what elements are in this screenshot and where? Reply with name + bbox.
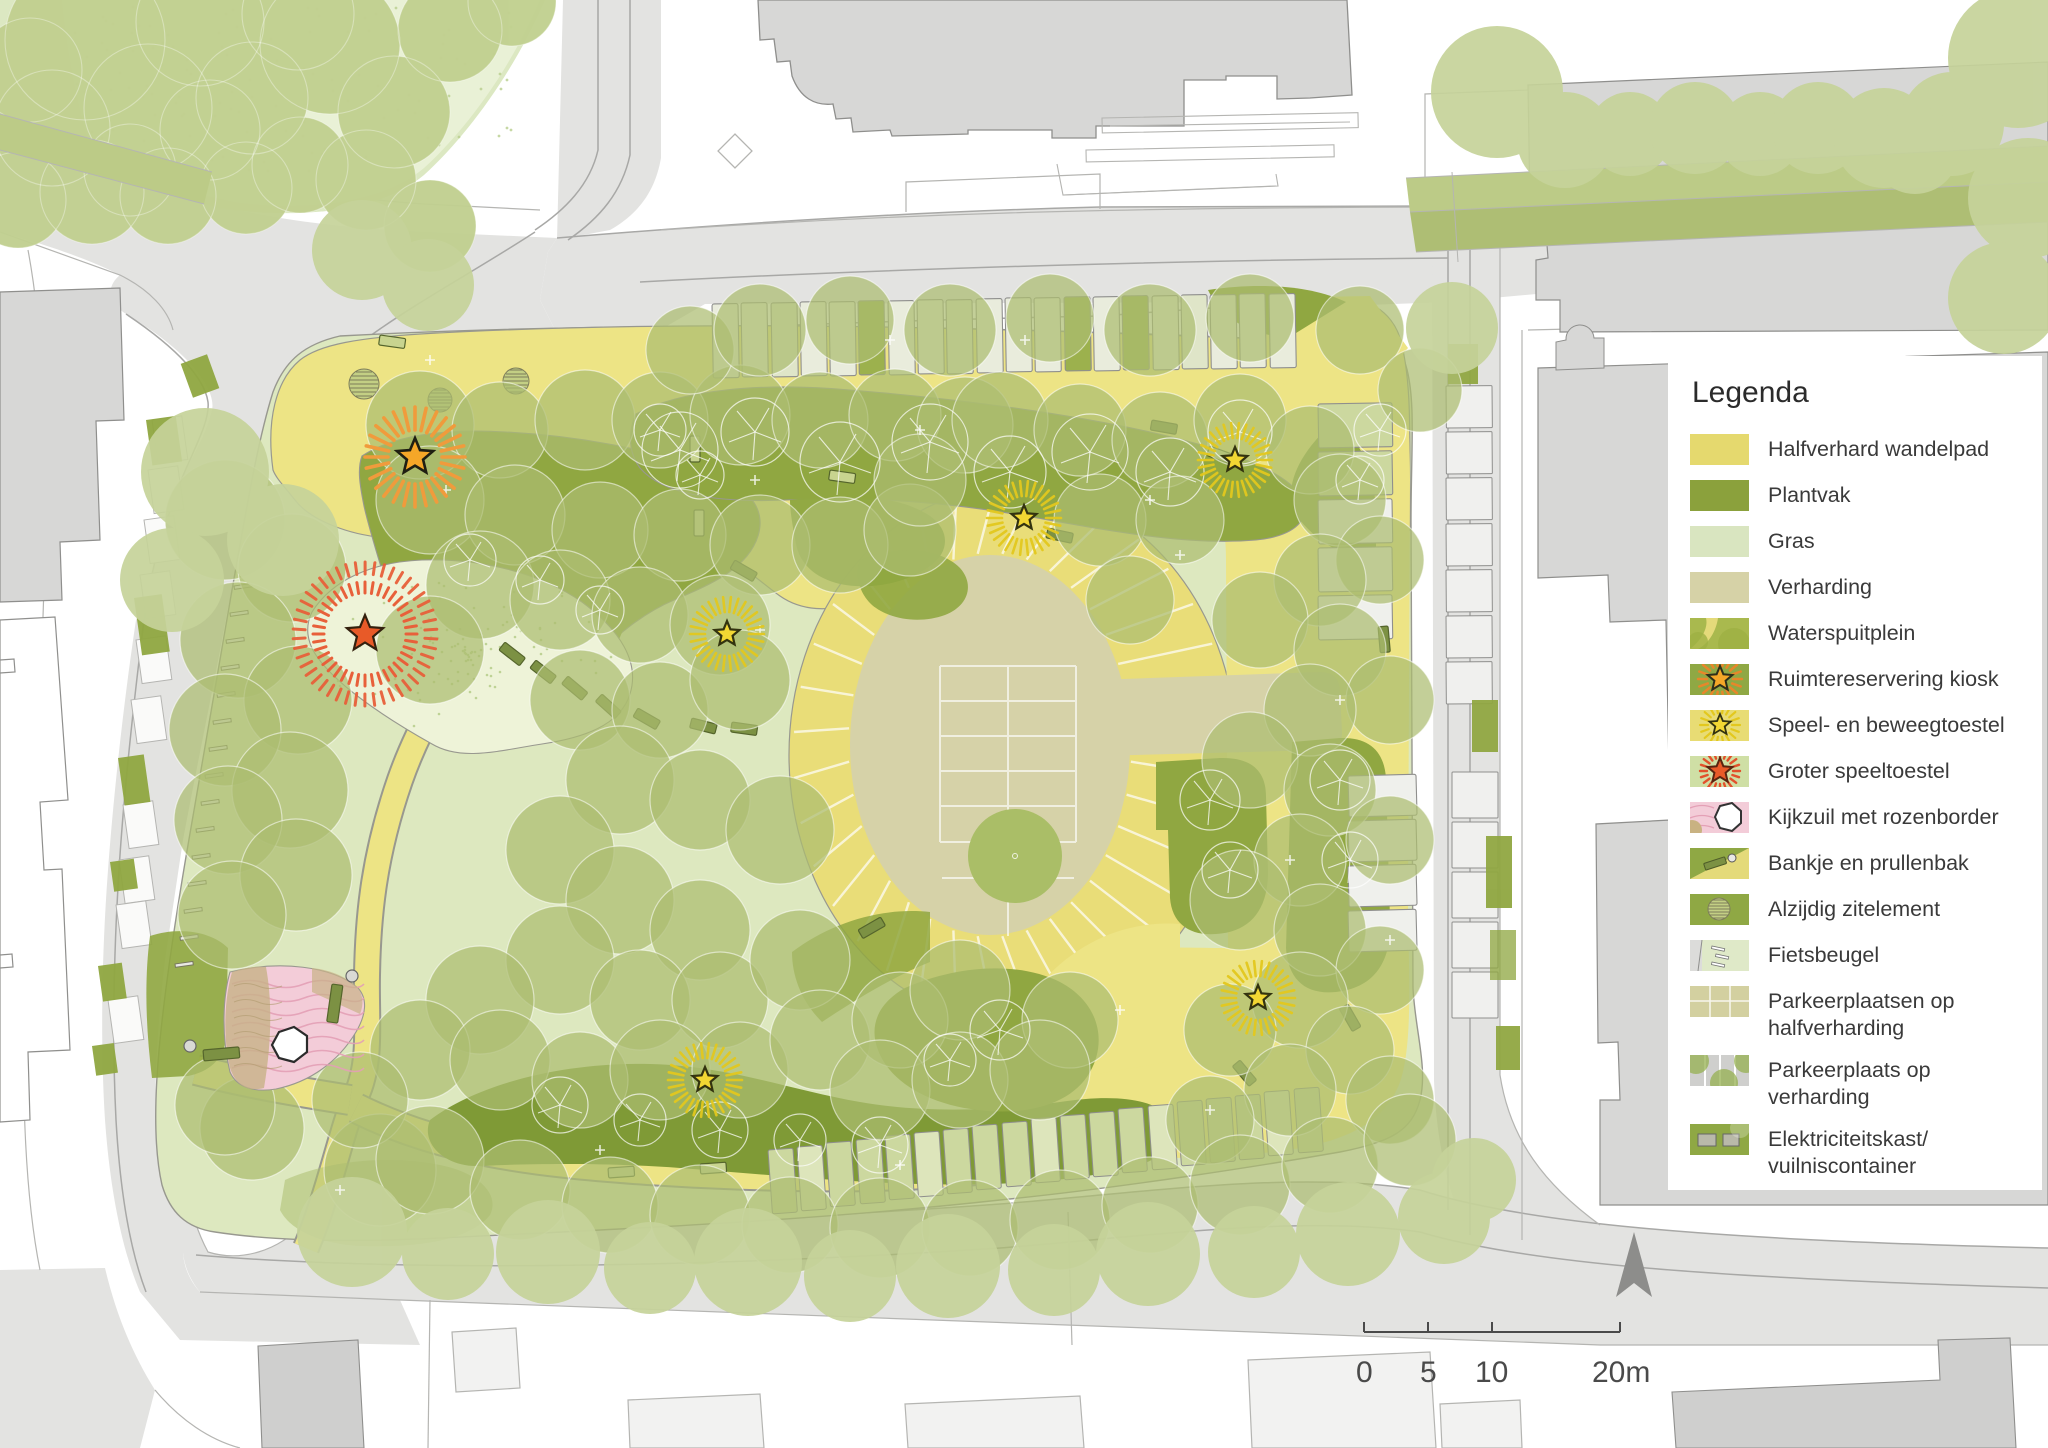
svg-text:Verharding: Verharding [1768, 575, 1872, 599]
svg-text:Waterspuitplein: Waterspuitplein [1768, 621, 1915, 645]
svg-text:Elektriciteitskast/: Elektriciteitskast/ [1768, 1127, 1928, 1151]
svg-text:Alzijdig zitelement: Alzijdig zitelement [1768, 897, 1940, 921]
svg-text:Halfverhard wandelpad: Halfverhard wandelpad [1768, 437, 1989, 461]
svg-text:Bankje en prullenbak: Bankje en prullenbak [1768, 851, 1969, 875]
svg-text:Kijkzuil met rozenborder: Kijkzuil met rozenborder [1768, 805, 1999, 829]
svg-text:0: 0 [1356, 1356, 1373, 1389]
svg-text:Legenda: Legenda [1692, 376, 1809, 409]
svg-text:halfverharding: halfverharding [1768, 1016, 1904, 1040]
svg-text:10: 10 [1475, 1356, 1508, 1389]
svg-text:Parkeerplaatsen op: Parkeerplaatsen op [1768, 989, 1954, 1013]
svg-text:Parkeerplaats op: Parkeerplaats op [1768, 1058, 1931, 1082]
svg-text:5: 5 [1420, 1356, 1437, 1389]
svg-text:Gras: Gras [1768, 529, 1815, 553]
svg-text:verharding: verharding [1768, 1085, 1870, 1109]
svg-text:Groter speeltoestel: Groter speeltoestel [1768, 759, 1950, 783]
svg-text:Ruimtereservering kiosk: Ruimtereservering kiosk [1768, 667, 1999, 691]
svg-text:vuilniscontainer: vuilniscontainer [1768, 1154, 1916, 1178]
svg-text:20m: 20m [1592, 1356, 1650, 1389]
svg-text:Plantvak: Plantvak [1768, 483, 1851, 507]
svg-text:Speel- en beweegtoestel: Speel- en beweegtoestel [1768, 713, 2005, 737]
svg-text:Fietsbeugel: Fietsbeugel [1768, 943, 1879, 967]
